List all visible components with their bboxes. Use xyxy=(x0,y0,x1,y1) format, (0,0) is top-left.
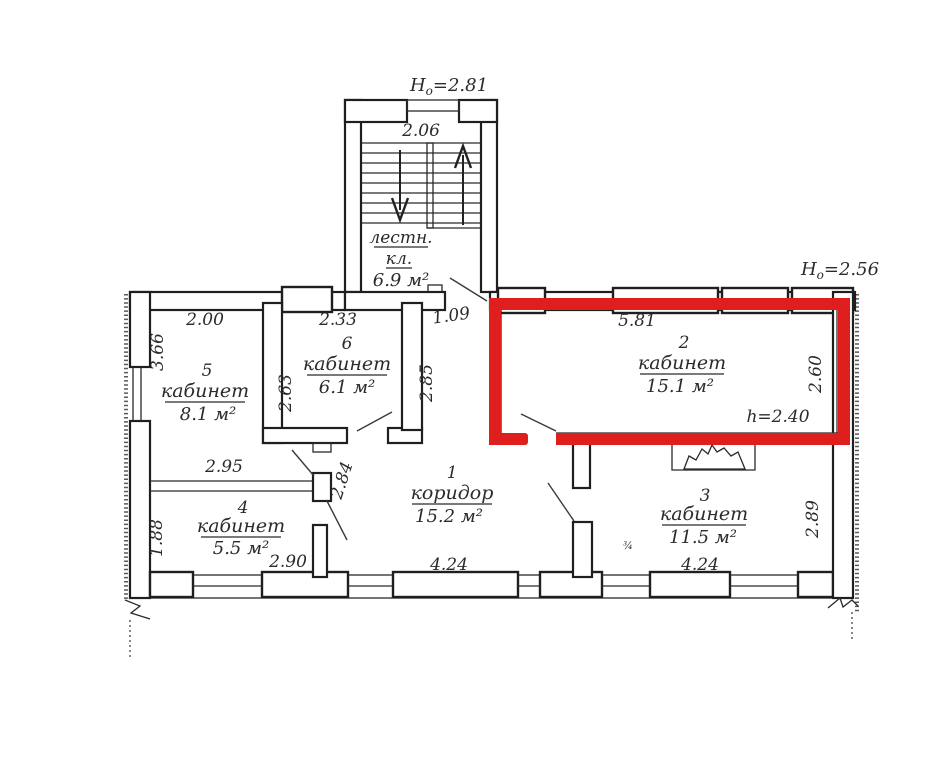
room4-label: 4 кабинет 5.5 м² xyxy=(197,498,285,559)
staircase-label: лестн. кл. 6.9 м² xyxy=(369,228,432,291)
room2-door-swing xyxy=(521,414,556,431)
svg-text:кл.: кл. xyxy=(386,249,412,269)
svg-text:кабинет: кабинет xyxy=(660,503,748,525)
break-symbol-right-icon xyxy=(828,598,858,608)
floor-plan-page: Ho=2.81 Ho=2.56 2.06 лестн. кл. 6.9 м² 5… xyxy=(0,0,946,780)
stair-top-window xyxy=(407,100,459,111)
dim-room6-right: 2.85 xyxy=(417,364,437,403)
svg-text:лестн.: лестн. xyxy=(369,228,432,248)
dim-room3-side: 2.89 xyxy=(803,500,823,539)
dim-room6-top: 2.33 xyxy=(318,310,357,330)
svg-text:коридор: коридор xyxy=(411,482,494,504)
room3-label: 3 кабинет 11.5 м² xyxy=(660,486,748,548)
svg-text:2: 2 xyxy=(678,333,690,353)
dim-room4-side: 1.88 xyxy=(147,519,167,557)
svg-text:1: 1 xyxy=(447,463,458,483)
dim-room2-side: 2.60 xyxy=(806,355,826,394)
break-symbol-left-icon xyxy=(125,600,150,619)
room6-label: 6 кабинет 6.1 м² xyxy=(303,334,391,398)
dim-room3-bottom: 4.24 xyxy=(680,555,719,575)
floor-plan-drawing: Ho=2.81 Ho=2.56 2.06 лестн. кл. 6.9 м² 5… xyxy=(0,0,946,780)
dim-corridor-bottom: 4.24 xyxy=(429,555,468,575)
dim-room5-top: 2.00 xyxy=(185,310,224,330)
radiator-icon xyxy=(672,443,755,470)
ceiling-height-left-label: Ho=2.81 xyxy=(409,75,488,98)
stray-mark: ¾ xyxy=(623,541,633,552)
svg-text:6.9 м²: 6.9 м² xyxy=(373,270,430,291)
svg-text:8.1 м²: 8.1 м² xyxy=(180,404,237,425)
svg-text:6.1 м²: 6.1 м² xyxy=(319,377,376,398)
svg-text:15.1 м²: 15.1 м² xyxy=(646,376,714,397)
partition-room5-room4 xyxy=(150,481,313,491)
ceiling-height-right-label: Ho=2.56 xyxy=(800,259,879,282)
dim-room2-top: 5.81 xyxy=(618,311,656,331)
dim-partition: 2.95 xyxy=(204,457,243,477)
room5-label: 5 кабинет 8.1 м² xyxy=(161,361,249,425)
stair-stringer xyxy=(427,143,433,228)
stair-width-dim: 2.06 xyxy=(401,121,440,141)
stairs-down-arrow-icon xyxy=(392,150,408,220)
svg-text:11.5 м²: 11.5 м² xyxy=(669,527,737,548)
svg-text:5.5 м²: 5.5 м² xyxy=(213,538,270,559)
room2-height-note: h=2.40 xyxy=(746,407,809,427)
dim-room6-left: 2.63 xyxy=(276,374,296,413)
left-window xyxy=(133,367,141,421)
svg-text:6: 6 xyxy=(342,334,353,354)
svg-text:кабинет: кабинет xyxy=(303,353,391,375)
svg-text:15.2 м²: 15.2 м² xyxy=(415,506,483,527)
room4-door-swing xyxy=(327,501,347,540)
dim-room4-bottom: 2.90 xyxy=(268,552,307,572)
room2-label: 2 кабинет 15.1 м² xyxy=(638,333,726,397)
dim-mid-wall: 2.84 xyxy=(327,459,358,502)
dim-entry-width: 1.09 xyxy=(431,303,471,328)
svg-text:5: 5 xyxy=(202,361,213,381)
svg-text:кабинет: кабинет xyxy=(197,515,285,537)
room3-door-swing xyxy=(548,483,574,521)
dim-room5-side: 3.66 xyxy=(148,333,168,371)
corridor-label: 1 коридор 15.2 м² xyxy=(411,463,494,527)
room6-door-swing xyxy=(357,412,392,431)
svg-text:кабинет: кабинет xyxy=(638,352,726,374)
room5-door-swing xyxy=(292,450,314,476)
svg-text:кабинет: кабинет xyxy=(161,380,249,402)
